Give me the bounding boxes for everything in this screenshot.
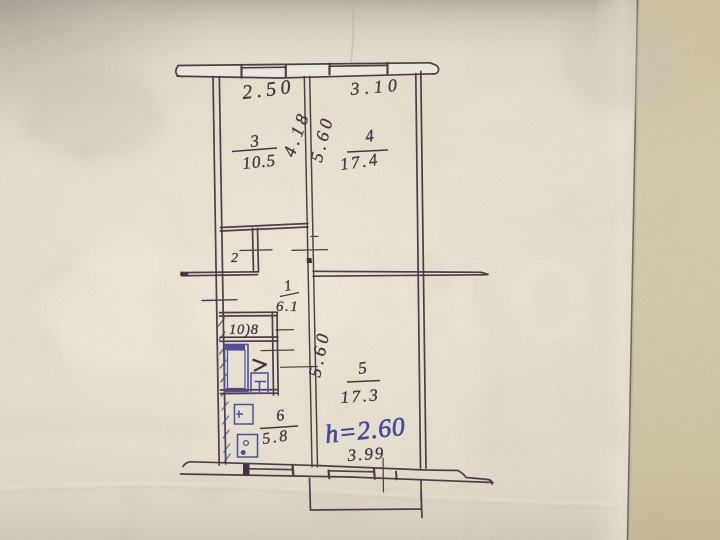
svg-text:10.5: 10.5 <box>241 151 277 173</box>
svg-text:6.1: 6.1 <box>276 299 299 315</box>
svg-text:2: 2 <box>231 251 238 266</box>
svg-text:17.3: 17.3 <box>340 385 381 407</box>
svg-text:3: 3 <box>248 131 259 151</box>
svg-text:10)8: 10)8 <box>229 322 259 338</box>
svg-text:3.99: 3.99 <box>346 443 386 465</box>
